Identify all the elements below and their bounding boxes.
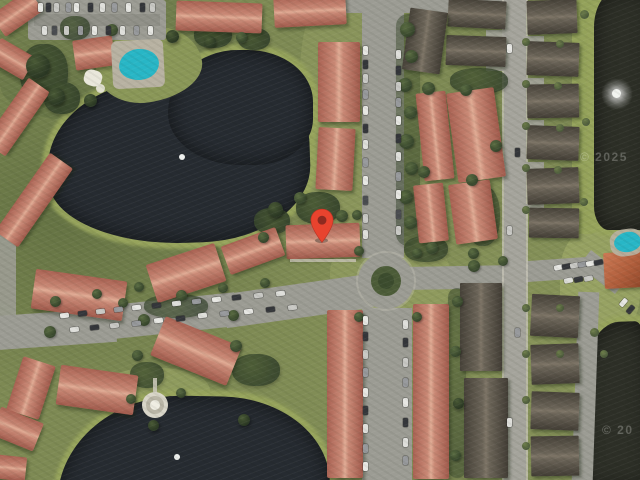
- tree: [522, 38, 530, 46]
- tree: [556, 350, 564, 358]
- parked-car: [515, 328, 520, 337]
- tree: [460, 84, 472, 96]
- apartment-roof: [0, 454, 27, 480]
- parked-car: [363, 444, 368, 453]
- parked-car: [363, 332, 368, 341]
- tree: [336, 210, 348, 222]
- parked-car: [100, 3, 105, 12]
- tree: [468, 260, 480, 272]
- parked-car: [396, 210, 401, 219]
- parked-car: [198, 312, 208, 318]
- tree: [238, 414, 250, 426]
- tree: [590, 328, 599, 337]
- tree: [405, 162, 418, 175]
- parked-car: [396, 82, 401, 91]
- tree: [132, 350, 143, 361]
- parked-car: [288, 304, 298, 310]
- roundabout-island: [378, 273, 394, 289]
- parked-car: [132, 304, 142, 310]
- parked-car: [60, 312, 70, 318]
- parked-car: [507, 226, 512, 235]
- townhome-row-roof: [530, 343, 579, 385]
- tree: [522, 304, 530, 312]
- parked-car: [363, 140, 368, 149]
- tree: [556, 124, 564, 132]
- parked-car: [46, 3, 51, 12]
- parked-car: [363, 230, 368, 239]
- parked-car: [64, 26, 69, 35]
- tree: [260, 278, 270, 288]
- parked-car: [266, 306, 276, 312]
- parked-car: [507, 418, 512, 427]
- tree: [412, 312, 422, 322]
- parked-car: [70, 326, 80, 332]
- townhome-row-roof: [460, 283, 502, 371]
- parked-car: [396, 226, 401, 235]
- tree: [450, 450, 461, 461]
- parked-car: [396, 134, 401, 143]
- tree: [522, 122, 530, 130]
- imagery-watermark: © 2025: [580, 150, 628, 164]
- walkway: [290, 259, 356, 262]
- tree: [404, 216, 417, 229]
- parked-car: [152, 302, 162, 308]
- tree: [426, 242, 438, 254]
- tree: [522, 350, 530, 358]
- parked-car: [396, 98, 401, 107]
- apartment-roof: [448, 179, 498, 244]
- parked-car: [254, 292, 264, 298]
- townhome-row-roof: [445, 35, 506, 67]
- tree: [352, 210, 362, 220]
- parked-car: [176, 315, 186, 321]
- parking-strip: [362, 308, 412, 480]
- tree: [166, 30, 179, 43]
- parked-car: [363, 388, 368, 397]
- townhome-row-roof: [526, 167, 579, 205]
- lake-fountain: [179, 154, 185, 160]
- townhome-row-roof: [527, 84, 580, 119]
- townhome-row-roof: [526, 0, 577, 35]
- parked-car: [403, 378, 408, 387]
- parked-car: [78, 310, 88, 316]
- parked-car: [363, 350, 368, 359]
- apartment-roof: [318, 42, 360, 122]
- tree: [452, 296, 463, 307]
- parked-car: [396, 116, 401, 125]
- parked-car: [212, 296, 222, 302]
- clubhouse-roof: [603, 251, 640, 289]
- parked-car: [403, 418, 408, 427]
- parked-car: [403, 456, 408, 465]
- parked-car: [403, 398, 408, 407]
- tree: [176, 388, 186, 398]
- tree: [50, 296, 61, 307]
- parking-lot-lane: [34, 14, 160, 26]
- tree: [490, 140, 502, 152]
- parked-car: [403, 338, 408, 347]
- parked-car: [120, 26, 125, 35]
- parked-car: [96, 308, 106, 314]
- lake-fountain: [612, 89, 621, 98]
- parked-car: [192, 298, 202, 304]
- satellite-map[interactable]: © 2025© 20: [0, 0, 640, 480]
- tree: [580, 10, 589, 19]
- apartment-roof: [273, 0, 346, 28]
- townhome-row-roof: [464, 378, 508, 478]
- apartment-roof: [327, 310, 363, 478]
- apartment-roof: [6, 356, 56, 420]
- parked-car: [74, 3, 79, 12]
- parked-car: [112, 3, 117, 12]
- parked-car: [150, 3, 155, 12]
- tree: [468, 248, 479, 259]
- apartment-roof: [446, 87, 506, 183]
- townhome-row-roof: [526, 125, 579, 161]
- tree: [582, 118, 590, 126]
- tree: [399, 190, 413, 204]
- parked-car: [363, 158, 368, 167]
- parked-car: [232, 294, 242, 300]
- map-pin-icon: [309, 208, 335, 244]
- parked-car: [276, 290, 286, 296]
- parked-car: [54, 3, 59, 12]
- tree: [522, 442, 530, 450]
- parked-car: [66, 3, 71, 12]
- parked-car: [363, 424, 368, 433]
- parked-car: [114, 306, 124, 312]
- tree: [236, 32, 247, 43]
- parked-car: [38, 3, 43, 12]
- tree: [294, 192, 306, 204]
- parked-car: [363, 46, 368, 55]
- parked-car: [363, 196, 368, 205]
- tree: [556, 40, 564, 48]
- apartment-roof: [176, 1, 263, 34]
- parked-car: [154, 317, 164, 323]
- tree: [48, 88, 65, 105]
- townhome-row-roof: [529, 208, 580, 239]
- tree: [126, 394, 136, 404]
- tree: [404, 106, 417, 119]
- tree: [580, 198, 588, 206]
- tree: [354, 246, 364, 256]
- parked-car: [507, 44, 512, 53]
- parked-car: [363, 316, 368, 325]
- parked-car: [363, 60, 368, 69]
- tree: [522, 80, 530, 88]
- tree: [554, 82, 562, 90]
- tree: [218, 283, 228, 293]
- imagery-watermark: © 20: [602, 423, 634, 437]
- townhome-row-roof: [447, 0, 506, 29]
- tree: [92, 289, 102, 299]
- parked-car: [363, 462, 368, 471]
- tree: [134, 282, 144, 292]
- parked-car: [92, 26, 97, 35]
- map-marker[interactable]: [309, 208, 335, 244]
- tree: [230, 340, 242, 352]
- tree: [26, 54, 50, 78]
- tree: [399, 134, 414, 149]
- parked-car: [363, 368, 368, 377]
- tree: [405, 50, 418, 63]
- tree: [400, 22, 415, 37]
- tree: [422, 82, 435, 95]
- tree: [258, 232, 269, 243]
- parked-car: [396, 66, 401, 75]
- tree: [412, 248, 422, 258]
- tree: [176, 290, 187, 301]
- apartment-roof: [315, 127, 355, 191]
- parked-car: [52, 26, 57, 35]
- tree: [600, 350, 608, 358]
- parked-car: [363, 90, 368, 99]
- parked-car: [126, 3, 131, 12]
- parked-car: [363, 74, 368, 83]
- parked-car: [78, 26, 83, 35]
- parked-car: [134, 26, 139, 35]
- parked-car: [396, 152, 401, 161]
- parked-car: [396, 190, 401, 199]
- tree: [522, 206, 530, 214]
- parked-car: [363, 406, 368, 415]
- tree: [522, 164, 530, 172]
- parked-car: [172, 300, 182, 306]
- tree: [522, 396, 530, 404]
- parked-car: [363, 214, 368, 223]
- townhome-row-roof: [526, 41, 579, 77]
- parked-car: [244, 308, 254, 314]
- tree: [228, 310, 239, 321]
- townhome-row-roof: [531, 436, 580, 477]
- tree: [418, 166, 430, 178]
- tree: [554, 166, 562, 174]
- apartment-roof: [413, 183, 449, 244]
- road: [0, 232, 16, 332]
- parked-car: [363, 106, 368, 115]
- apartment-roof: [413, 304, 449, 479]
- tree: [450, 346, 461, 357]
- parked-car: [515, 148, 520, 157]
- townhome-row-roof: [530, 294, 580, 338]
- parked-car: [140, 3, 145, 12]
- tree: [466, 174, 478, 186]
- parked-car: [132, 320, 142, 326]
- tree: [556, 304, 564, 312]
- tree: [268, 202, 283, 217]
- townhome-row-roof: [530, 391, 579, 431]
- tree: [84, 94, 97, 107]
- tree: [148, 420, 159, 431]
- parked-car: [396, 172, 401, 181]
- parked-car: [106, 26, 111, 35]
- parked-car: [403, 358, 408, 367]
- lake-fountain: [174, 454, 180, 460]
- parked-car: [42, 26, 47, 35]
- parked-car: [110, 322, 120, 328]
- townhome-row-roof: [402, 8, 448, 75]
- tree: [453, 398, 464, 409]
- lake: [594, 0, 640, 230]
- tree: [498, 256, 508, 266]
- pavilion-roof: [96, 84, 105, 93]
- parked-car: [403, 320, 408, 329]
- parked-car: [90, 324, 100, 330]
- tree-cluster: [232, 354, 280, 386]
- gazebo-roof: [150, 400, 160, 410]
- parked-car: [396, 50, 401, 59]
- parked-car: [88, 3, 93, 12]
- tree: [44, 326, 56, 338]
- tree: [204, 36, 216, 48]
- parked-car: [363, 124, 368, 133]
- clubhouse-roof: [72, 35, 116, 70]
- parked-car: [403, 438, 408, 447]
- parked-car: [363, 176, 368, 185]
- parked-car: [220, 310, 230, 316]
- parked-car: [148, 26, 153, 35]
